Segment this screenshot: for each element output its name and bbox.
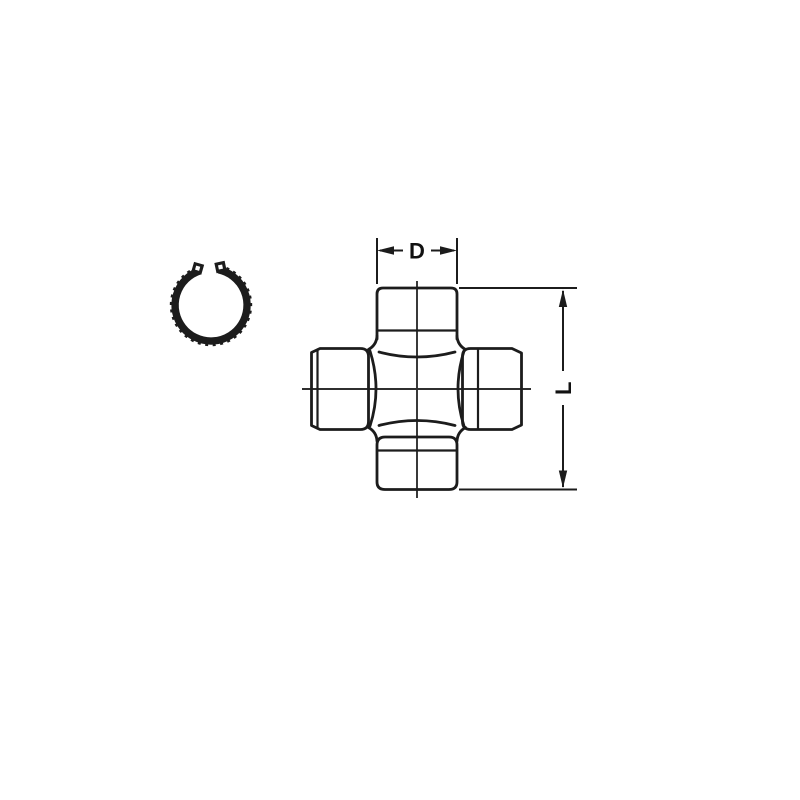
flare-top-left bbox=[369, 336, 378, 350]
l-arrowhead-bottom bbox=[559, 471, 567, 489]
drawing-canvas: D L bbox=[0, 0, 800, 800]
snap-ring-right-lug bbox=[214, 261, 226, 273]
dimension-l-label: L bbox=[551, 382, 576, 395]
snap-ring-icon bbox=[171, 261, 251, 345]
d-arrowhead-left bbox=[377, 246, 394, 254]
flare-top-right bbox=[457, 336, 466, 350]
dimension-d-label: D bbox=[409, 239, 425, 264]
dimension-d: D bbox=[377, 238, 457, 284]
d-arrowhead-right bbox=[440, 246, 457, 254]
snap-ring-body bbox=[175, 270, 247, 341]
u-joint-cross-drawing bbox=[302, 281, 531, 498]
l-arrowhead-top bbox=[559, 290, 567, 308]
flare-bottom-right bbox=[457, 428, 466, 442]
flare-bottom-left bbox=[369, 428, 378, 442]
technical-drawing: D L bbox=[0, 0, 800, 800]
